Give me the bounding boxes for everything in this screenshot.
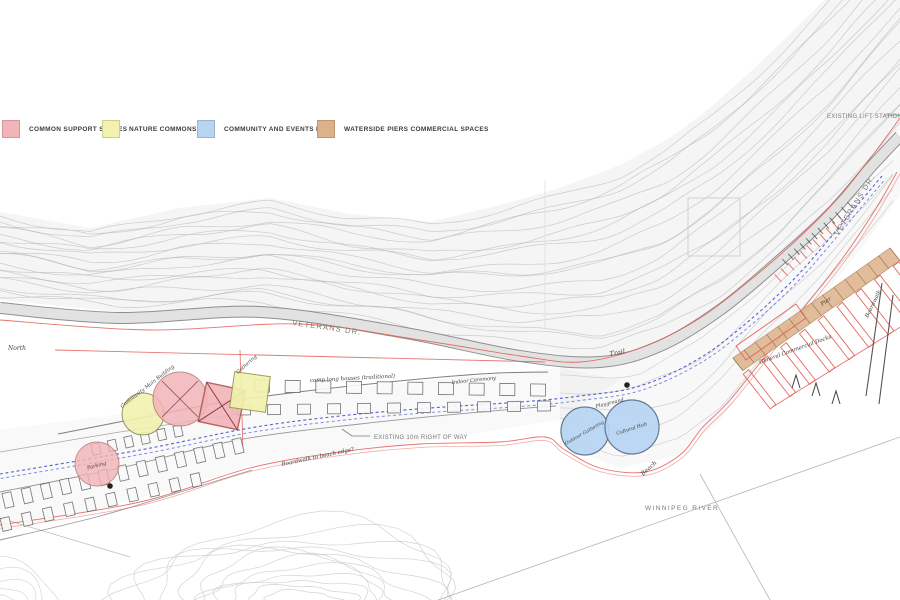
site-point-marker <box>624 382 630 388</box>
boat-sketch <box>812 383 820 396</box>
nature-commons-square <box>230 372 271 413</box>
note-north: North <box>7 345 26 352</box>
plan-drawing: EXISTING LIFT STATION VETERANS DR. VETER… <box>0 0 900 600</box>
boat-sketch <box>792 375 800 388</box>
legend-swatch-common-support <box>2 120 20 138</box>
legend-item-nature-commons: NATURE COMMONS <box>102 120 197 138</box>
note-gathering: Gathering <box>235 354 258 376</box>
boat-sketch <box>832 391 840 404</box>
legend-label-community-hub: COMMUNITY AND EVENTS HUB <box>224 126 331 133</box>
winnipeg-river-label: WINNIPEG RIVER <box>645 505 719 512</box>
site-point-marker <box>107 483 113 489</box>
note-boardwalk: Boardwalk <box>864 289 883 320</box>
legend-item-waterside-piers: WATERSIDE PIERS COMMERCIAL SPACES <box>317 120 489 138</box>
legend-swatch-waterside-piers <box>317 120 335 138</box>
legend-swatch-nature-commons <box>102 120 120 138</box>
legend-swatch-community-hub <box>197 120 215 138</box>
legend: COMMON SUPPORT SPACES NATURE COMMONS COM… <box>0 120 900 138</box>
legend-label-waterside-piers: WATERSIDE PIERS COMMERCIAL SPACES <box>344 126 489 133</box>
right-of-way-label: EXISTING 10m RIGHT OF WAY <box>374 435 468 441</box>
sketch-line <box>879 295 893 404</box>
site-plan-canvas: COMMON SUPPORT SPACES NATURE COMMONS COM… <box>0 0 900 600</box>
legend-label-nature-commons: NATURE COMMONS <box>129 126 197 133</box>
legend-item-community-hub: COMMUNITY AND EVENTS HUB <box>197 120 331 138</box>
river-island-contours <box>0 511 488 600</box>
